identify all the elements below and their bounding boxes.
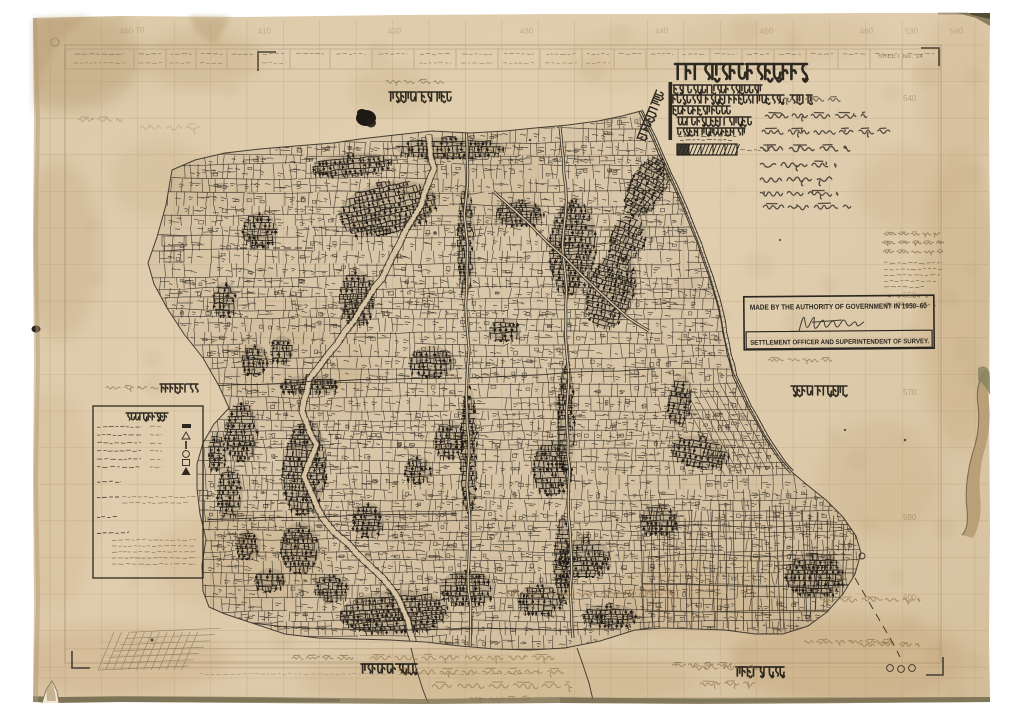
svg-text:460: 460 (860, 26, 874, 36)
svg-text:430: 430 (520, 26, 534, 36)
svg-text:420: 420 (388, 26, 402, 36)
svg-text:SHEET No. 14: SHEET No. 14 (878, 54, 923, 60)
svg-text:550: 550 (903, 291, 917, 300)
svg-text:450: 450 (760, 26, 774, 36)
svg-text:600: 600 (903, 593, 917, 602)
svg-text:MADE BY THE AUTHORITY OF GOVER: MADE BY THE AUTHORITY OF GOVERNMENT IN 1… (750, 301, 927, 312)
svg-text:460 70: 460 70 (120, 25, 146, 36)
svg-text:570: 570 (903, 388, 917, 397)
svg-text:540: 540 (950, 26, 964, 36)
svg-text:580: 580 (903, 513, 917, 522)
svg-text:410: 410 (258, 26, 272, 36)
svg-text:540: 540 (903, 94, 917, 103)
svg-text:440: 440 (655, 26, 669, 36)
svg-text:530: 530 (905, 26, 919, 36)
